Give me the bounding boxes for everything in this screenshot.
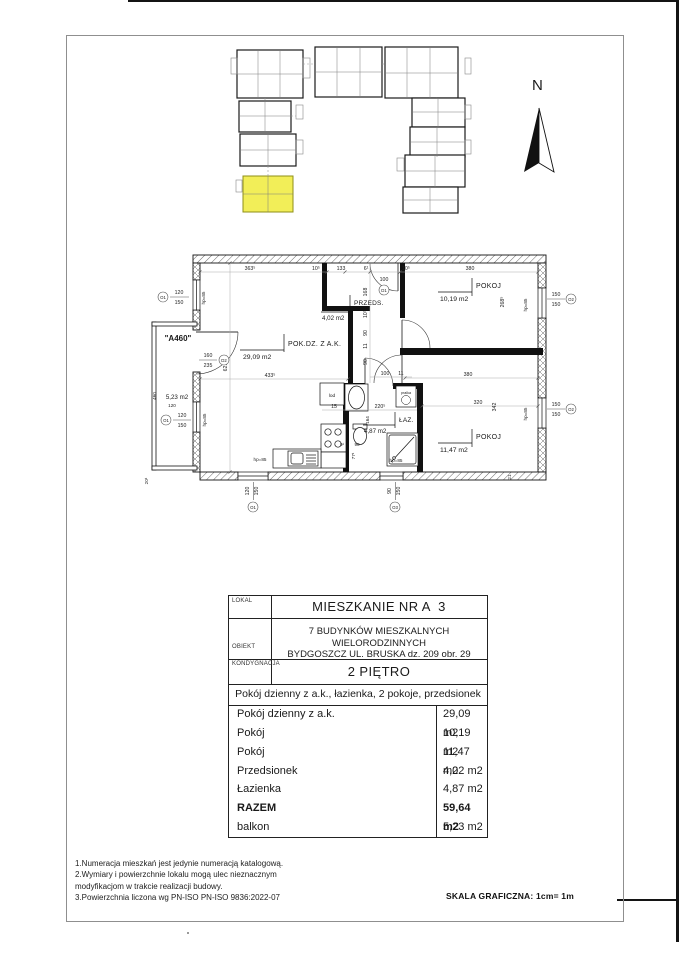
note-line: 2.Wymiary i powierzchnie lokalu mogą ule… <box>75 869 385 880</box>
bathtub <box>345 384 368 411</box>
balcony-name: "A460" <box>165 334 192 343</box>
row-value: 4,87 m2 <box>436 780 487 799</box>
room-name: POK.DZ. Z A.K. <box>288 341 341 348</box>
dim-label: 150 <box>552 412 561 418</box>
scan-edge-top <box>128 0 679 2</box>
dim-label: 150 <box>175 300 184 306</box>
dim-label: 100 <box>380 277 389 283</box>
dim-label: 150 <box>552 402 561 408</box>
apartment-number: MIESZKANIE NR A 3 <box>271 596 487 618</box>
site-plan-overview <box>225 42 475 217</box>
dim-label: hp=85 <box>390 458 403 463</box>
table-row-description: Pokój dzienny z a.k., łazienka, 2 pokoje… <box>229 684 487 706</box>
table-row-obiekt: OBIEKT 7 BUDYNKÓW MIESZKALNYCH WIELORODZ… <box>229 618 487 660</box>
north-label: N <box>532 77 543 94</box>
balcony-area: 5,23 m2 <box>166 394 189 401</box>
window-right-lower <box>538 398 546 428</box>
room-name: ŁAZ. <box>399 417 414 424</box>
fridge-label: lod <box>329 393 336 399</box>
apartment-description: Pokój dzienny z a.k., łazienka, 2 pokoje… <box>229 684 487 705</box>
marker-window-right-lower: 150 150 O2 <box>547 402 576 418</box>
page: N <box>0 0 679 960</box>
dim-label: 9¹ <box>340 442 345 447</box>
dim-label: 10⁵ <box>363 310 369 318</box>
footer-notes: 1.Numeracja mieszkań jest jedynie numera… <box>75 858 385 903</box>
floor-value: 2 PIĘTRO <box>271 659 487 684</box>
note-line: 1.Numeracja mieszkań jest jedynie numera… <box>75 858 385 869</box>
dim-label: 150 <box>396 487 402 496</box>
marker-window-left-lower: 120 150 O1 <box>161 413 191 429</box>
dim-label: 164 <box>365 416 370 424</box>
washing-machine: pralka <box>396 386 416 407</box>
table-row: Pokój 11,47 m2 <box>229 743 487 762</box>
dim-label: 150 <box>552 292 561 298</box>
dim-label: 268⁵ <box>500 297 506 308</box>
room-area: 10,19 m2 <box>440 296 469 303</box>
lokal-label: LOKAL <box>232 598 252 604</box>
washer-label: pralka <box>401 391 412 395</box>
marker-label: O1 <box>250 505 256 510</box>
dim-label: 133 <box>337 266 346 272</box>
dim-label: 168 <box>363 288 369 297</box>
table-row: balkon 5,23 m2 <box>229 818 487 837</box>
dim-label: hp=85 <box>202 413 207 426</box>
apartment-info-table: LOKAL MIESZKANIE NR A 3 OBIEKT 7 BUDYNKÓ… <box>228 595 488 838</box>
marker-label: O2 <box>568 407 574 412</box>
obiekt-value: 7 BUDYNKÓW MIESZKALNYCH WIELORODZINNYCH … <box>271 626 487 661</box>
dim-label: hp=85 <box>523 298 528 311</box>
table-row-total: RAZEM 59,64 m2 <box>229 799 487 818</box>
marker-label: O3 <box>392 505 398 510</box>
marker-label: O1 <box>163 418 169 423</box>
door-room2 <box>374 355 402 383</box>
door-balcony <box>196 332 238 374</box>
dim-label: hp=85 <box>254 457 267 462</box>
room-name: POKOJ <box>476 283 501 290</box>
dim-label: 220⁵ <box>375 404 386 410</box>
dim-label: 380 <box>464 372 473 378</box>
area-rows: Pokój dzienny z a.k. 29,09 m2 Pokój 10,1… <box>229 705 487 837</box>
dim-label: hp=85 <box>523 407 528 420</box>
row-value: 5,23 m2 <box>436 818 487 837</box>
room-label-living: POK.DZ. Z A.K. 29,09 m2 <box>240 334 341 361</box>
table-row-lokal: LOKAL MIESZKANIE NR A 3 <box>229 596 487 619</box>
marker-label: O1 <box>160 295 166 300</box>
dim-label: 20¹ <box>144 477 149 484</box>
note-line: 3.Powierzchnia liczona wg PN-ISO PN-ISO … <box>75 892 385 903</box>
window-left-upper <box>193 280 200 310</box>
dimension-labels: 363⁵ 10⁵ 133 6¹ 10⁵ 380 100 621 433⁵ hp=… <box>201 266 528 480</box>
fixtures: lod <box>273 383 418 468</box>
dim-label: 235 <box>204 363 213 369</box>
doors <box>196 263 430 386</box>
dim-label: 380 <box>466 266 475 272</box>
dim-label: 120 <box>245 487 251 496</box>
dim-label: 90 <box>363 330 369 336</box>
dim-label: 10⁵ <box>312 266 320 272</box>
marker-window-right-upper: 150 150 O2 <box>547 292 576 308</box>
dim-label: 363⁵ <box>245 266 256 272</box>
table-row: Pokój 10,19 m2 <box>229 724 487 743</box>
dim-label: 150 <box>254 487 260 496</box>
row-value: 4,02 m2 <box>436 762 487 781</box>
marker-window-bottom-left: 120 150 O1 <box>245 482 260 512</box>
note-line: modyfikacjom w trakcie realizacji budowy… <box>75 881 385 892</box>
obiekt-label: OBIEKT <box>232 644 255 650</box>
room-area: 11,47 m2 <box>440 447 468 454</box>
room-name: PRZEDS. <box>354 300 384 307</box>
dim-label: 120 <box>175 290 184 296</box>
dimension-ticks <box>199 262 540 474</box>
dim-label: 11 <box>398 371 403 377</box>
room-label-bath: ŁAZ. 4,87 m2 <box>363 412 414 435</box>
dim-label: 100 <box>381 371 390 377</box>
scale-note: SKALA GRAFICZNA: 1cm= 1m <box>446 891 574 901</box>
dim-label: 77¹ <box>351 452 356 459</box>
dim-label: 160 <box>204 353 213 359</box>
window-bottom-kitchen <box>380 472 403 480</box>
room-area: 4,02 m2 <box>322 315 345 322</box>
north-arrow: N <box>505 68 575 188</box>
room-name: POKOJ <box>476 434 501 441</box>
fridge: lod <box>320 383 344 405</box>
dim-label: 90 <box>387 488 393 494</box>
scan-dot <box>187 932 189 934</box>
balcony: "A460" 5,23 m2 120 460 20¹ <box>144 322 197 484</box>
dim-label: 15 <box>331 404 337 410</box>
dim-label: 21 <box>507 474 512 480</box>
dim-label: 320 <box>474 400 483 406</box>
marker-label: O2 <box>568 297 574 302</box>
dim-label: 120 <box>178 413 187 419</box>
dim-label: 10⁵ <box>402 266 410 272</box>
dim-label: hp=85 <box>201 291 206 304</box>
dim-label: 90 <box>363 359 369 365</box>
dim-label: 150 <box>178 423 187 429</box>
marker-label: D1 <box>381 288 387 293</box>
door-room1 <box>402 320 430 348</box>
dim-label: 433⁵ <box>265 373 276 379</box>
window-right-upper <box>538 288 546 318</box>
window-left-lower <box>193 402 200 432</box>
floor-plan: "A460" 5,23 m2 120 460 20¹ <box>140 240 580 515</box>
table-row: Przedsionek 4,02 m2 <box>229 762 487 781</box>
dim-label: 120 <box>168 403 176 408</box>
marker-label: D2 <box>221 358 227 363</box>
north-arrow-left <box>524 108 539 172</box>
obiekt-line1: 7 BUDYNKÓW MIESZKALNYCH WIELORODZINNYCH <box>271 626 487 649</box>
marker-window-bottom-kitchen: 90 150 O3 <box>387 482 402 512</box>
dim-label: 150 <box>552 302 561 308</box>
window-bottom-left <box>238 472 268 480</box>
table-row: Łazienka 4,87 m2 <box>229 780 487 799</box>
dim-label: 11 <box>363 343 369 348</box>
dim-label: 342 <box>492 403 498 412</box>
room-label-room2: POKOJ 11,47 m2 <box>438 429 501 454</box>
north-arrow-right <box>539 108 554 172</box>
table-row-kondygnacja: KONDYGNACJA 2 PIĘTRO <box>229 659 487 685</box>
room-label-room1: POKOJ 10,19 m2 <box>438 278 501 303</box>
marker-door-entrance: D1 <box>379 285 389 295</box>
marker-window-left-upper: 120 150 O1 <box>158 290 189 306</box>
room-area: 29,09 m2 <box>243 354 272 361</box>
room-area: 4,87 m2 <box>364 428 387 435</box>
dim-label: 460 <box>152 392 157 400</box>
table-row: Pokój dzienny z a.k. 29,09 m2 <box>229 705 487 724</box>
room-labels: POK.DZ. Z A.K. 29,09 m2 PRZEDS. 4,02 m2 … <box>240 278 501 454</box>
dim-label: 90 <box>354 442 360 447</box>
scan-edge-segment <box>617 899 679 901</box>
dim-label: 6¹ <box>364 266 369 272</box>
kitchen-sink <box>273 449 321 468</box>
